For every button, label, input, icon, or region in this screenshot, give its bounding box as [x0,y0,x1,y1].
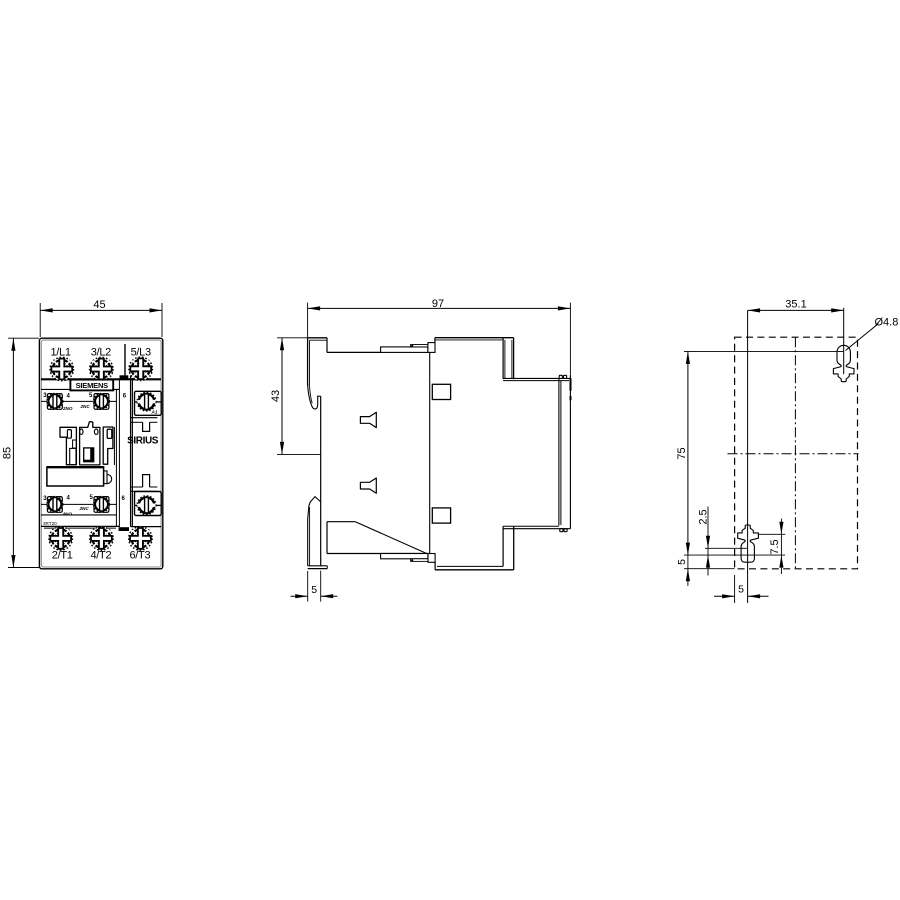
svg-text:43: 43 [270,390,282,402]
svg-text:5: 5 [676,559,688,565]
svg-text:85: 85 [2,447,14,459]
svg-text:2NC: 2NC [80,404,91,409]
svg-text:45: 45 [93,299,105,311]
svg-text:97: 97 [432,298,444,310]
svg-text:35.1: 35.1 [785,299,806,311]
svg-text:3/L2: 3/L2 [91,346,111,358]
svg-text:2.5: 2.5 [697,509,709,524]
svg-text:2NC: 2NC [79,506,90,511]
svg-text:5/L3: 5/L3 [131,346,151,358]
svg-text:6/T3: 6/T3 [129,550,150,562]
svg-text:1/L1: 1/L1 [50,346,70,358]
svg-text:SIEMENS: SIEMENS [76,381,109,390]
svg-text:7.5: 7.5 [769,539,781,554]
svg-text:Ø4.8: Ø4.8 [875,317,899,329]
svg-text:75: 75 [676,447,688,459]
svg-text:4NO: 4NO [62,512,73,517]
svg-text:5: 5 [311,584,317,596]
svg-text:SIRIUS: SIRIUS [127,436,159,447]
svg-text:5: 5 [738,584,744,596]
svg-text:A1: A1 [151,410,158,415]
svg-text:4/T2: 4/T2 [90,550,111,562]
svg-text:3RT20: 3RT20 [43,521,57,526]
svg-text:2/T1: 2/T1 [52,550,73,562]
svg-text:2NO: 2NO [62,406,73,411]
